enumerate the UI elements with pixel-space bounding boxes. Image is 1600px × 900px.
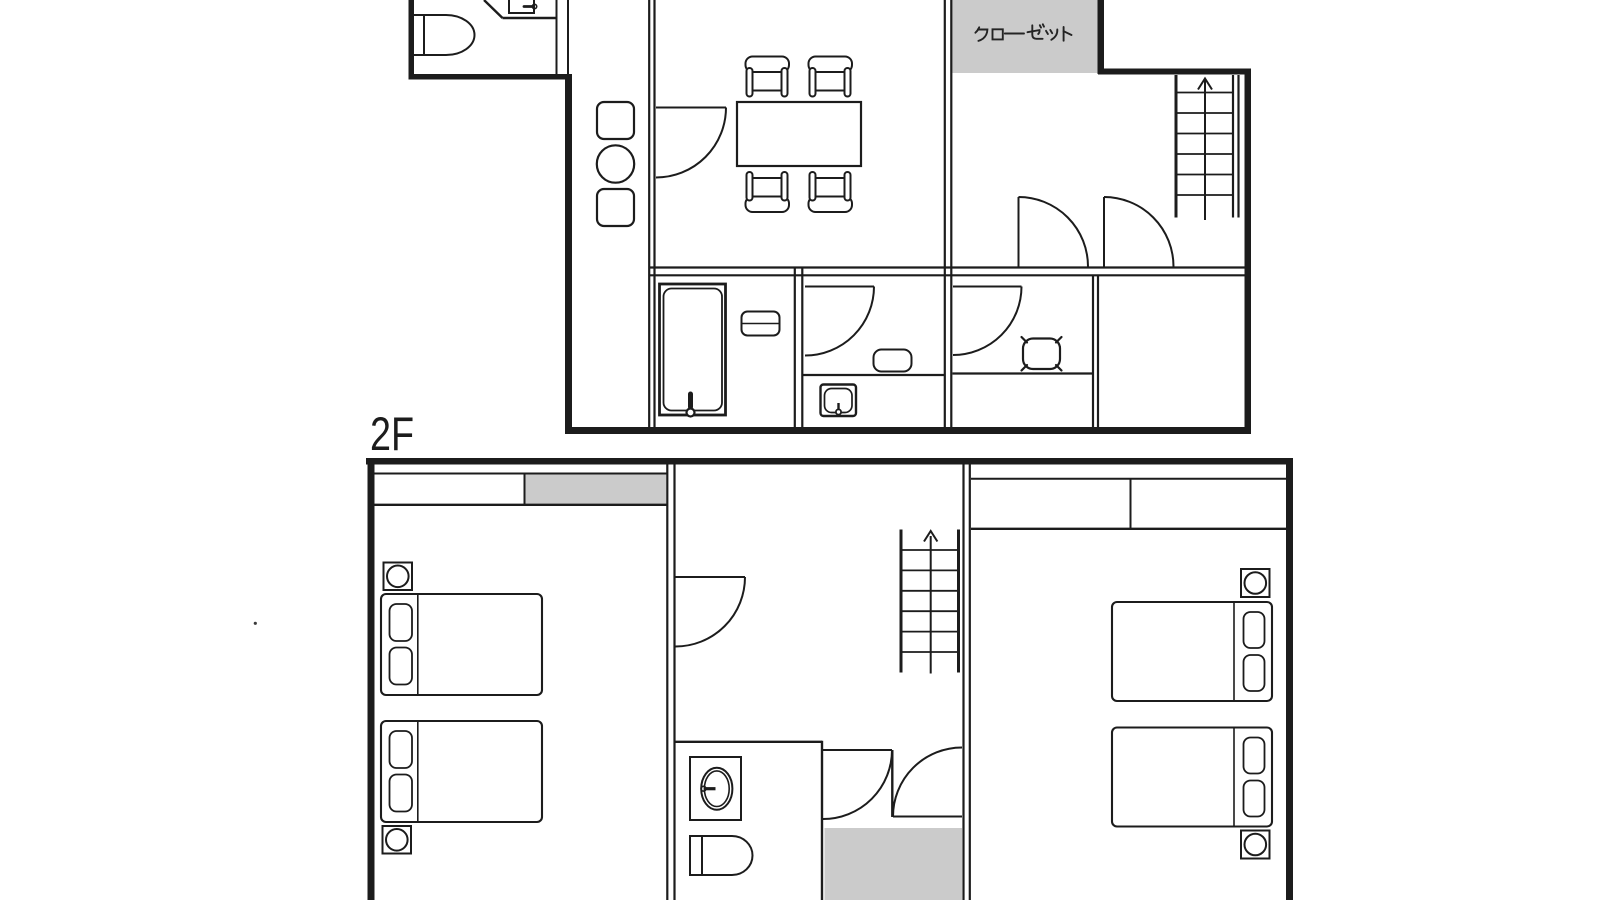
- svg-text:2F: 2F: [370, 407, 414, 460]
